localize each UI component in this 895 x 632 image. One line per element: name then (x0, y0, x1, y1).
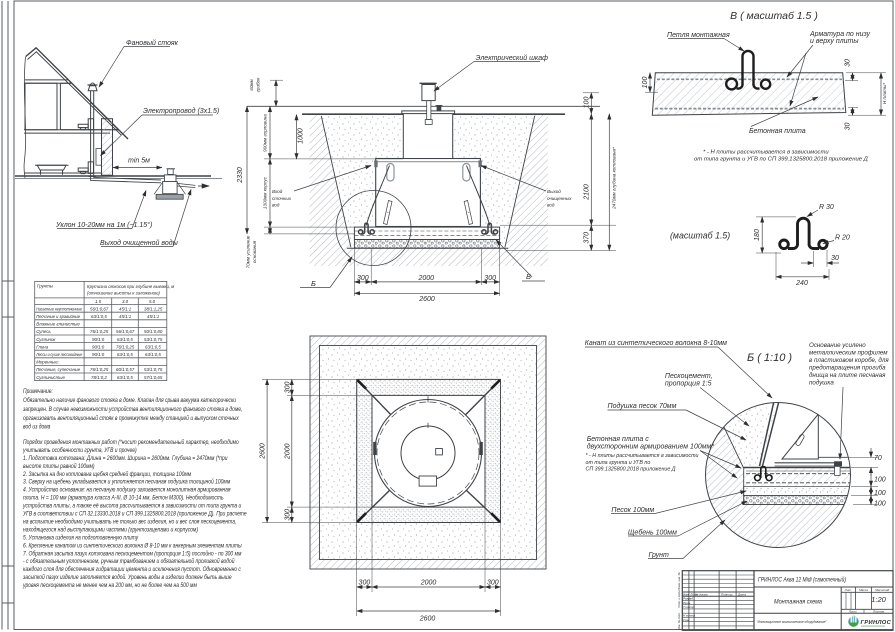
svg-text:2600: 2600 (418, 296, 435, 303)
svg-text:* - Н плиты рассчитывается в з: * - Н плиты рассчитывается в зависимости (586, 453, 699, 459)
svg-text:90/1:0: 90/1:0 (92, 352, 105, 357)
svg-text:ГРИНЛОС: ГРИНЛОС (861, 620, 892, 626)
svg-text:76/1:0,25: 76/1:0,25 (90, 329, 109, 334)
svg-text:1000: 1000 (298, 128, 305, 144)
svg-text:Масштаб: Масштаб (875, 588, 889, 592)
svg-text:4. Устройство основания: на пе: 4. Устройство основания: на песчаную под… (23, 486, 231, 494)
svg-text:50/1:0,80: 50/1:0,80 (144, 329, 163, 334)
svg-text:сточных: сточных (272, 196, 292, 201)
svg-text:30: 30 (831, 255, 839, 262)
svg-text:основания: основания (252, 240, 257, 263)
svg-text:2330: 2330 (237, 167, 244, 184)
svg-text:Монтажная схема: Монтажная схема (774, 599, 822, 606)
svg-text:30: 30 (845, 123, 852, 131)
svg-text:300: 300 (284, 509, 291, 521)
svg-text:- с обязательным уплотнением,: - с обязательным уплотнением, ручным тра… (23, 558, 234, 566)
svg-text:5. Установка изделия на подгот: 5. Установка изделия на подготовленную п… (23, 535, 139, 542)
svg-text:"Инновационное экологическое о: "Инновационное экологическое оборудовани… (757, 620, 828, 624)
svg-text:и верху плиты: и верху плиты (810, 38, 859, 45)
svg-text:R 20: R 20 (835, 235, 850, 242)
svg-text:3.0: 3.0 (122, 299, 129, 304)
svg-text:1300мм корпус: 1300мм корпус (263, 176, 268, 209)
svg-text:56/1:0,67: 56/1:0,67 (90, 306, 109, 311)
svg-text:Дата: Дата (737, 592, 746, 596)
svg-text:Влажные глинистые: Влажные глинистые (36, 322, 80, 327)
svg-text:63/1:0,5: 63/1:0,5 (145, 352, 161, 357)
svg-text:очищенных: очищенных (547, 196, 572, 201)
svg-text:Т.контр.: Т.контр. (683, 605, 695, 609)
svg-text:высоте плиты равной 100мм): высоте плиты равной 100мм) (23, 462, 95, 470)
svg-text:70мм усиление: 70мм усиление (246, 235, 251, 268)
svg-text:45/1:1: 45/1:1 (119, 314, 132, 319)
svg-text:организовать вентиляционный ст: организовать вентиляционный стояк в пром… (23, 414, 239, 422)
svg-text:2600: 2600 (419, 616, 436, 623)
svg-text:Примечание:: Примечание: (23, 389, 53, 396)
svg-text:Б ( 1:10 ): Б ( 1:10 ) (747, 352, 792, 364)
svg-text:Листов: Листов (872, 609, 884, 613)
svg-text:(отношение высоты к заложению): (отношение высоты к заложению) (87, 291, 160, 296)
svg-text:каждого слоя для обеспечения г: каждого слоя для обеспечения гидратации … (23, 567, 241, 574)
svg-text:Лит.: Лит. (844, 588, 852, 592)
svg-text:Суглинок: Суглинок (36, 337, 56, 342)
svg-text:100: 100 (874, 490, 886, 497)
svg-text:Бетонная плита: Бетонная плита (749, 128, 806, 135)
svg-text:100: 100 (874, 501, 886, 508)
svg-text:учитывать особенности грунта,: учитывать особенности грунта, УГВ и проч… (22, 447, 137, 454)
svg-text:Н плиты*: Н плиты* (882, 83, 887, 104)
svg-text:от типа грунта и УГВ по: от типа грунта и УГВ по (586, 460, 651, 466)
svg-text:Супесь: Супесь (36, 329, 51, 334)
svg-text:днища на плите песчаная: днища на плите песчаная (809, 372, 886, 379)
svg-text:3. Сверху на щебень укладывает: 3. Сверху на щебень укладывается и уплот… (23, 478, 230, 486)
svg-text:5.0: 5.0 (149, 299, 156, 304)
svg-text:находящегося над выступающими: находящегося над выступающими частями (г… (23, 527, 198, 534)
svg-text:Суглинистые: Суглинистые (36, 375, 65, 380)
svg-text:7. Обратная засыпка пазух котл: 7. Обратная засыпка пазух котлована песк… (23, 550, 242, 558)
svg-text:Инв. № подл.: Инв. № подл. (677, 612, 681, 630)
svg-text:1. Подготовка котлована: Длина: 1. Подготовка котлована: Длина = 2600мм.… (23, 455, 228, 462)
svg-text:Крутизна откосов при глубине в: Крутизна откосов при глубине выемки, м (87, 284, 174, 289)
svg-text:Лист: Лист (848, 609, 857, 613)
svg-text:Уклон 10-20мм на 1м (~1.15°): Уклон 10-20мм на 1м (~1.15°) (55, 221, 152, 229)
svg-text:2000: 2000 (284, 443, 291, 460)
svg-text:уровня пескоцемента не менее ч: уровня пескоцемента не менее чем на 200 … (22, 583, 197, 590)
svg-text:подушка: подушка (809, 380, 834, 387)
svg-text:предотвращения прогиба: предотвращения прогиба (809, 365, 886, 372)
svg-text:53/1:0,75: 53/1:0,75 (144, 337, 163, 342)
svg-text:на всплытие необходимо учитыв: на всплытие необходимо учитывать не толь… (23, 519, 236, 526)
svg-text:Электропровод (3х1.5): Электропровод (3х1.5) (143, 107, 219, 115)
svg-text:Вход: Вход (272, 189, 283, 194)
svg-text:(масштаб 1.5): (масштаб 1.5) (670, 231, 730, 241)
svg-text:запрещен. В случае невозможнос: запрещен. В случае невозможности устройс… (22, 405, 242, 413)
svg-text:100: 100 (642, 77, 649, 89)
svg-text:В ( масштаб 1.5 ): В ( масштаб 1.5 ) (730, 10, 818, 22)
svg-text:Б: Б (311, 279, 316, 288)
svg-text:Песчаные и гравийные: Песчаные и гравийные (36, 314, 81, 319)
svg-text:Песок 100мм: Песок 100мм (611, 507, 654, 514)
svg-text:ГРИНЛОС Аква 12 Midi (самотечн: ГРИНЛОС Аква 12 Midi (самотечный) (758, 577, 846, 584)
svg-text:Петля монтажная: Петля монтажная (667, 32, 730, 39)
svg-text:Канат из синтетического волокн: Канат из синтетического волокна 8-10мм (585, 340, 727, 347)
svg-text:57/1:0,65: 57/1:0,65 (144, 375, 163, 380)
svg-text:Обязательно наличие фанового с: Обязательно наличие фанового стояка в до… (23, 397, 236, 404)
svg-text:Подп. и дата: Подп. и дата (677, 590, 681, 608)
svg-text:300: 300 (359, 580, 371, 587)
svg-text:min 5м: min 5м (128, 158, 150, 165)
svg-text:100: 100 (584, 97, 591, 109)
svg-text:2600: 2600 (260, 443, 267, 460)
svg-text:Выход: Выход (547, 189, 561, 194)
svg-text:СП 399.1325800.2018 приложение: СП 399.1325800.2018 приложение Д (586, 467, 676, 473)
svg-text:Моренные:: Моренные: (36, 360, 59, 365)
svg-text:2470мм глубина котлована*: 2470мм глубина котлована* (612, 147, 617, 210)
svg-text:Лессы и сухие лессовидные: Лессы и сухие лессовидные (35, 352, 82, 357)
svg-text:2100: 2100 (584, 184, 591, 201)
svg-text:2000: 2000 (420, 580, 437, 587)
svg-text:вод: вод (547, 203, 555, 208)
svg-text:R 30: R 30 (819, 204, 834, 211)
svg-text:240: 240 (795, 280, 808, 287)
svg-text:56/1:0,67: 56/1:0,67 (116, 329, 135, 334)
svg-text:Подпись: Подпись (721, 592, 733, 596)
svg-text:45/1:1: 45/1:1 (147, 314, 160, 319)
svg-text:от типа грунта и УГВ по СП 399: от типа грунта и УГВ по СП 399.1325800.2… (694, 157, 868, 163)
svg-text:металлическим профилем: металлическим профилем (809, 350, 888, 357)
svg-text:Арматура по низу: Арматура по низу (809, 31, 871, 38)
svg-text:засыпкой пазух изделие заполня: засыпкой пазух изделие заполняется водой… (22, 574, 231, 582)
svg-text:* - Н плиты рассчитывается в з: * - Н плиты рассчитывается в зависимости (703, 150, 829, 156)
svg-text:76/1:0,25: 76/1:0,25 (90, 367, 109, 372)
svg-text:Фановый стояк: Фановый стояк (126, 39, 179, 47)
svg-text:63/1:0,5: 63/1:0,5 (91, 314, 107, 319)
svg-text:Пескоцемент,: Пескоцемент, (665, 373, 713, 380)
svg-text:30: 30 (845, 59, 852, 67)
svg-text:плита. Н = 100 мм (арматура кл: плита. Н = 100 мм (арматура класса А-III… (23, 495, 224, 502)
svg-text:90/1:0: 90/1:0 (92, 337, 105, 342)
svg-text:Взам. инв. №: Взам. инв. № (677, 572, 681, 589)
svg-text:1:20: 1:20 (871, 595, 887, 604)
svg-text:Грунт: Грунт (649, 552, 670, 559)
svg-text:Масса: Масса (859, 588, 868, 592)
svg-text:300: 300 (357, 275, 369, 282)
svg-text:1.5: 1.5 (95, 299, 102, 304)
svg-text:Песчаные, супесчаные: Песчаные, супесчаные (36, 367, 81, 372)
svg-text:грибок: грибок (256, 77, 261, 93)
svg-text:Насыпные неуплотненные: Насыпные неуплотненные (36, 306, 82, 311)
svg-text:Глина: Глина (36, 344, 49, 349)
svg-text:Утв.: Утв. (683, 618, 690, 622)
svg-text:устройства плиты, а также её в: устройства плиты, а также её высота расс… (22, 502, 241, 510)
svg-text:63/1:0,5: 63/1:0,5 (117, 375, 133, 380)
svg-text:вод из дома: вод из дома (23, 424, 50, 431)
svg-text:2. Засыпка на дно котлована ще: 2. Засыпка на дно котлована щебня средне… (22, 470, 191, 478)
svg-text:53/1:0,75: 53/1:0,75 (144, 367, 163, 372)
svg-text:63/1:0,5: 63/1:0,5 (117, 352, 133, 357)
svg-text:Бетонная плита с: Бетонная плита с (587, 436, 650, 443)
svg-text:90/1:0: 90/1:0 (92, 344, 105, 349)
svg-text:Грунты: Грунты (37, 284, 54, 289)
svg-text:300: 300 (284, 381, 291, 393)
svg-text:№ докум.: № докум. (695, 592, 708, 596)
svg-text:двухсторонним армированием 100: двухсторонним армированием 100мм* (587, 443, 715, 451)
svg-text:45/1:1: 45/1:1 (119, 306, 132, 311)
svg-text:60/1:0,57: 60/1:0,57 (116, 367, 135, 372)
svg-text:пропорция 1:5: пропорция 1:5 (665, 381, 712, 388)
svg-text:Щебень 100мм: Щебень 100мм (628, 529, 677, 537)
svg-text:60мм: 60мм (249, 78, 254, 90)
svg-text:70: 70 (874, 455, 882, 462)
svg-text:вод: вод (272, 203, 280, 208)
svg-text:6. Крепление канатом из синтет: 6. Крепление канатом из синтетического в… (23, 543, 242, 550)
svg-text:63/1:0,5: 63/1:0,5 (145, 344, 161, 349)
svg-text:300: 300 (487, 580, 499, 587)
svg-text:370: 370 (584, 232, 591, 244)
svg-text:900мм горловина: 900мм горловина (263, 114, 268, 152)
svg-text:78/1:0,2: 78/1:0,2 (91, 375, 107, 380)
svg-text:УГВ в соответствии с СП 32.133: УГВ в соответствии с СП 32.13330.2018 и … (22, 511, 247, 518)
svg-text:в пластиковом коробе, для: в пластиковом коробе, для (809, 357, 889, 364)
svg-text:38/1:1,25: 38/1:1,25 (144, 306, 163, 311)
svg-text:300: 300 (484, 275, 496, 282)
svg-text:100: 100 (874, 477, 886, 484)
svg-text:63/1:0,5: 63/1:0,5 (117, 337, 133, 342)
svg-text:Основание усилено: Основание усилено (809, 342, 866, 349)
svg-text:180: 180 (754, 229, 761, 241)
svg-text:Электрический шкаф: Электрический шкаф (476, 54, 549, 62)
svg-text:Порядок проведения монтажных р: Порядок проведения монтажных работ (*нос… (23, 438, 239, 446)
svg-text:Выход очищенной воды: Выход очищенной воды (100, 239, 179, 247)
svg-text:76/1:0,25: 76/1:0,25 (116, 344, 135, 349)
svg-text:2000: 2000 (418, 275, 435, 282)
svg-text:Подушка песок 70мм: Подушка песок 70мм (608, 402, 677, 410)
